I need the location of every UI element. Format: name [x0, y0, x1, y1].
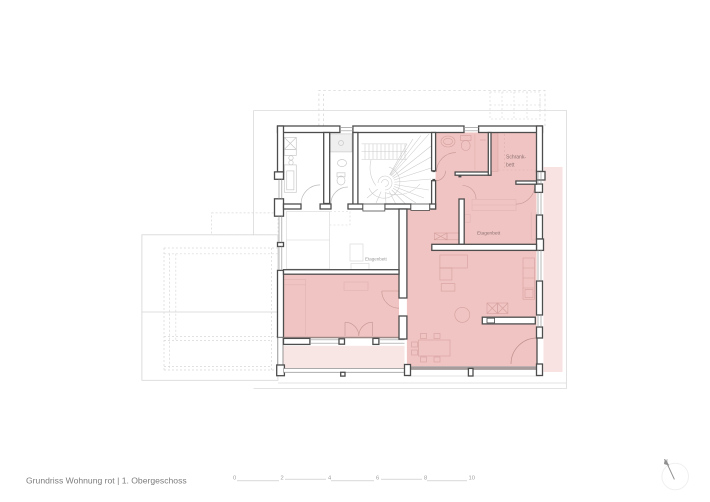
svg-text:Grundriss Wohnung rot | 1. Obe: Grundriss Wohnung rot | 1. Obergeschoss	[26, 476, 187, 486]
svg-text:10: 10	[469, 476, 475, 482]
svg-text:bett: bett	[506, 163, 515, 169]
svg-text:6: 6	[376, 476, 379, 482]
svg-text:Etagenbett: Etagenbett	[477, 231, 501, 237]
svg-text:Schrank-: Schrank-	[506, 155, 526, 161]
svg-text:N: N	[664, 459, 668, 465]
svg-text:Etagenbett: Etagenbett	[365, 257, 388, 262]
svg-text:2: 2	[281, 476, 284, 482]
svg-text:8: 8	[424, 476, 427, 482]
svg-text:0: 0	[233, 476, 236, 482]
